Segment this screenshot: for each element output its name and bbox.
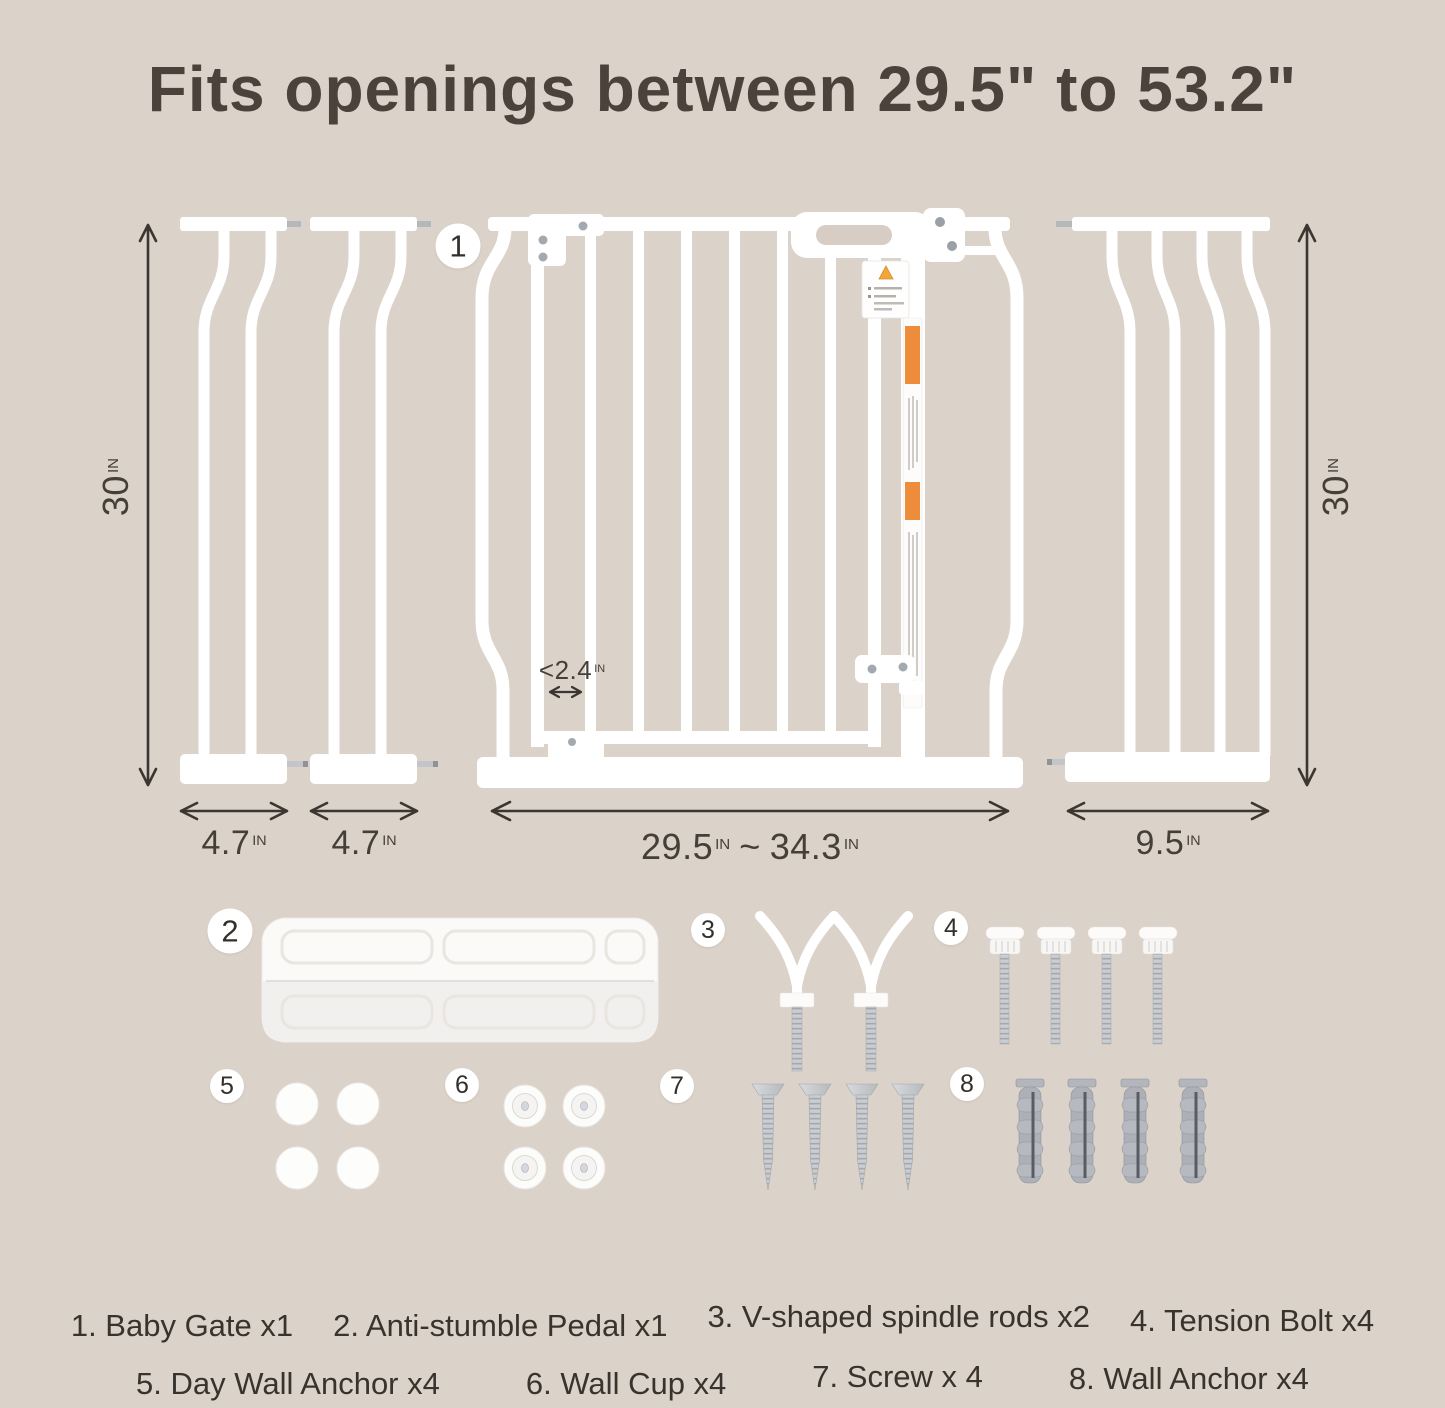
extension-panel-large [1047, 217, 1270, 782]
dim-height-left: 30IN [95, 458, 137, 516]
unit-superscript: IN [715, 836, 730, 853]
legend-item-wall-cup: 6. Wall Cup x4 [526, 1366, 726, 1402]
product-diagram: Fits openings between 29.5" to 53.2" [0, 0, 1445, 1408]
warning-tag [862, 261, 909, 318]
legend-item-spindle-rods: 3. V-shaped spindle rods x2 [707, 1299, 1090, 1335]
part-number-badge-7: 7 [660, 1069, 694, 1103]
width-arrow-ext3 [1068, 803, 1268, 819]
dim-separator: ~ [739, 826, 761, 867]
dim-value: 9.5 [1135, 824, 1184, 862]
dim-value: 30 [95, 475, 136, 516]
gate-handle [791, 208, 965, 262]
dim-value-max: 34.3 [770, 826, 842, 867]
height-arrow-left [140, 225, 156, 785]
dim-value: 4.7 [201, 824, 250, 862]
unit-superscript: IN [252, 833, 266, 849]
extension-panel-small-2 [310, 217, 438, 784]
anti-stumble-pedal [262, 918, 658, 1042]
legend-row-1: 1. Baby Gate x1 2. Anti-stumble Pedal x1… [0, 1308, 1445, 1344]
dim-value: 4.7 [331, 824, 380, 862]
width-arrow-ext2 [311, 803, 417, 819]
unit-superscript: IN [382, 833, 396, 849]
bar-gap-arrow [550, 687, 581, 697]
spindle-rods [760, 916, 908, 1071]
screws [752, 1084, 924, 1190]
baby-gate [477, 208, 1023, 788]
dim-bar-gap: <2.4IN [539, 655, 605, 686]
unit-superscript: IN [1186, 833, 1200, 849]
wall-anchors [1016, 1079, 1207, 1183]
height-arrow-right [1299, 225, 1315, 785]
gate-latch [855, 655, 923, 695]
day-wall-anchors [276, 1083, 379, 1189]
legend-item-wall-anchor: 8. Wall Anchor x4 [1069, 1361, 1309, 1397]
part-number-badge-4: 4 [934, 911, 968, 945]
extension-panel-small-1 [180, 217, 308, 784]
dim-ext-large: 9.5IN [1135, 824, 1200, 863]
legend-item-screw: 7. Screw x 4 [812, 1359, 983, 1395]
unit-superscript: IN [105, 458, 122, 473]
part-number-badge-3: 3 [691, 913, 725, 947]
warning-strip [903, 318, 922, 708]
dim-ext-small-1: 4.7IN [201, 824, 266, 863]
dim-value-min: 29.5 [641, 826, 713, 867]
width-arrow-gate [492, 802, 1008, 820]
unit-superscript: IN [1325, 458, 1342, 473]
part-number-badge-1: 1 [436, 224, 481, 269]
width-arrow-ext1 [181, 803, 287, 819]
unit-superscript: IN [844, 836, 859, 853]
tension-bolts [986, 927, 1177, 1044]
dim-height-right: 30IN [1315, 458, 1357, 516]
legend-item-pedal: 2. Anti-stumble Pedal x1 [333, 1308, 667, 1344]
wall-cups [504, 1085, 605, 1189]
legend-row-2: 5. Day Wall Anchor x4 6. Wall Cup x4 7. … [0, 1366, 1445, 1402]
dim-value: <2.4 [539, 655, 592, 685]
part-number-badge-5: 5 [210, 1069, 244, 1103]
unit-superscript: IN [594, 663, 605, 675]
legend-item-tension-bolt: 4. Tension Bolt x4 [1130, 1303, 1374, 1339]
dim-ext-small-2: 4.7IN [331, 824, 396, 863]
legend-item-baby-gate: 1. Baby Gate x1 [71, 1308, 293, 1344]
legend-item-day-wall-anchor: 5. Day Wall Anchor x4 [136, 1366, 440, 1402]
part-number-badge-6: 6 [445, 1068, 479, 1102]
part-number-badge-8: 8 [950, 1067, 984, 1101]
dim-gate-width: 29.5IN~34.3IN [641, 826, 859, 868]
dim-value: 30 [1315, 475, 1356, 516]
part-number-badge-2: 2 [208, 909, 253, 954]
gate-illustration-canvas [0, 0, 1445, 1408]
